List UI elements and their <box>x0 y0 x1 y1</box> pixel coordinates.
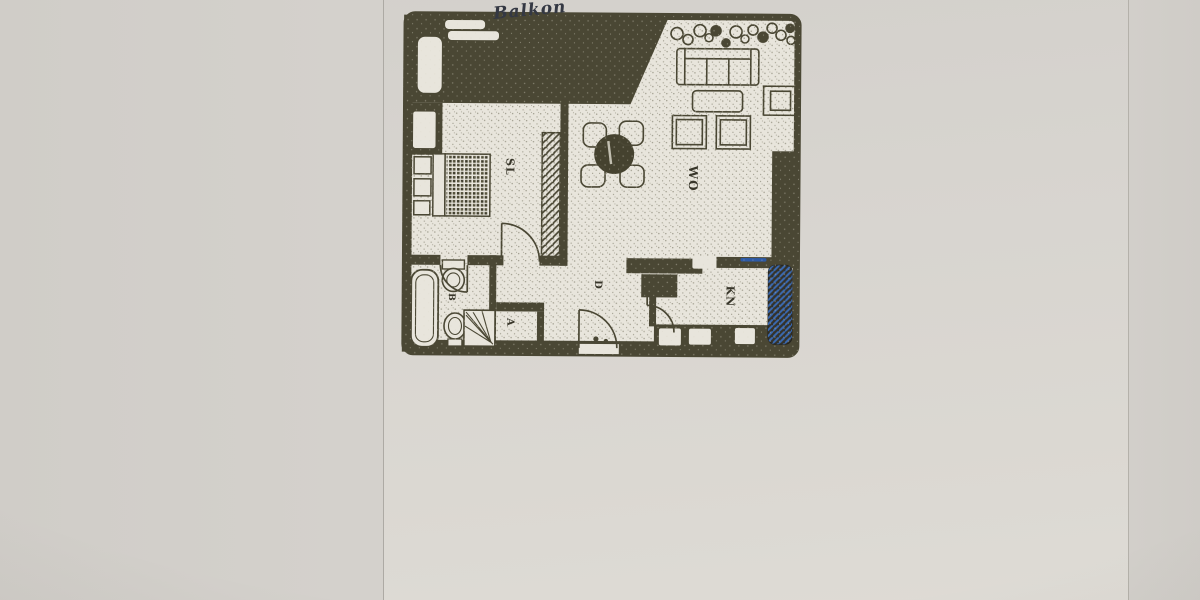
room-label-living: WO <box>687 166 699 192</box>
room-label-bedroom: SL <box>504 158 515 176</box>
room-label-bath: B <box>446 293 455 302</box>
floor-plan-area: Balkon SL WO KN B D A <box>0 0 1200 600</box>
photocopy-speckle <box>402 12 801 358</box>
floor-plan-drawing <box>0 0 1200 600</box>
room-label-kitchen: KN <box>724 286 735 308</box>
room-label-storage: A <box>504 318 514 327</box>
photo-of-floor-plan: Balkon SL WO KN B D A <box>0 0 1200 600</box>
room-label-hall: D <box>592 280 602 290</box>
